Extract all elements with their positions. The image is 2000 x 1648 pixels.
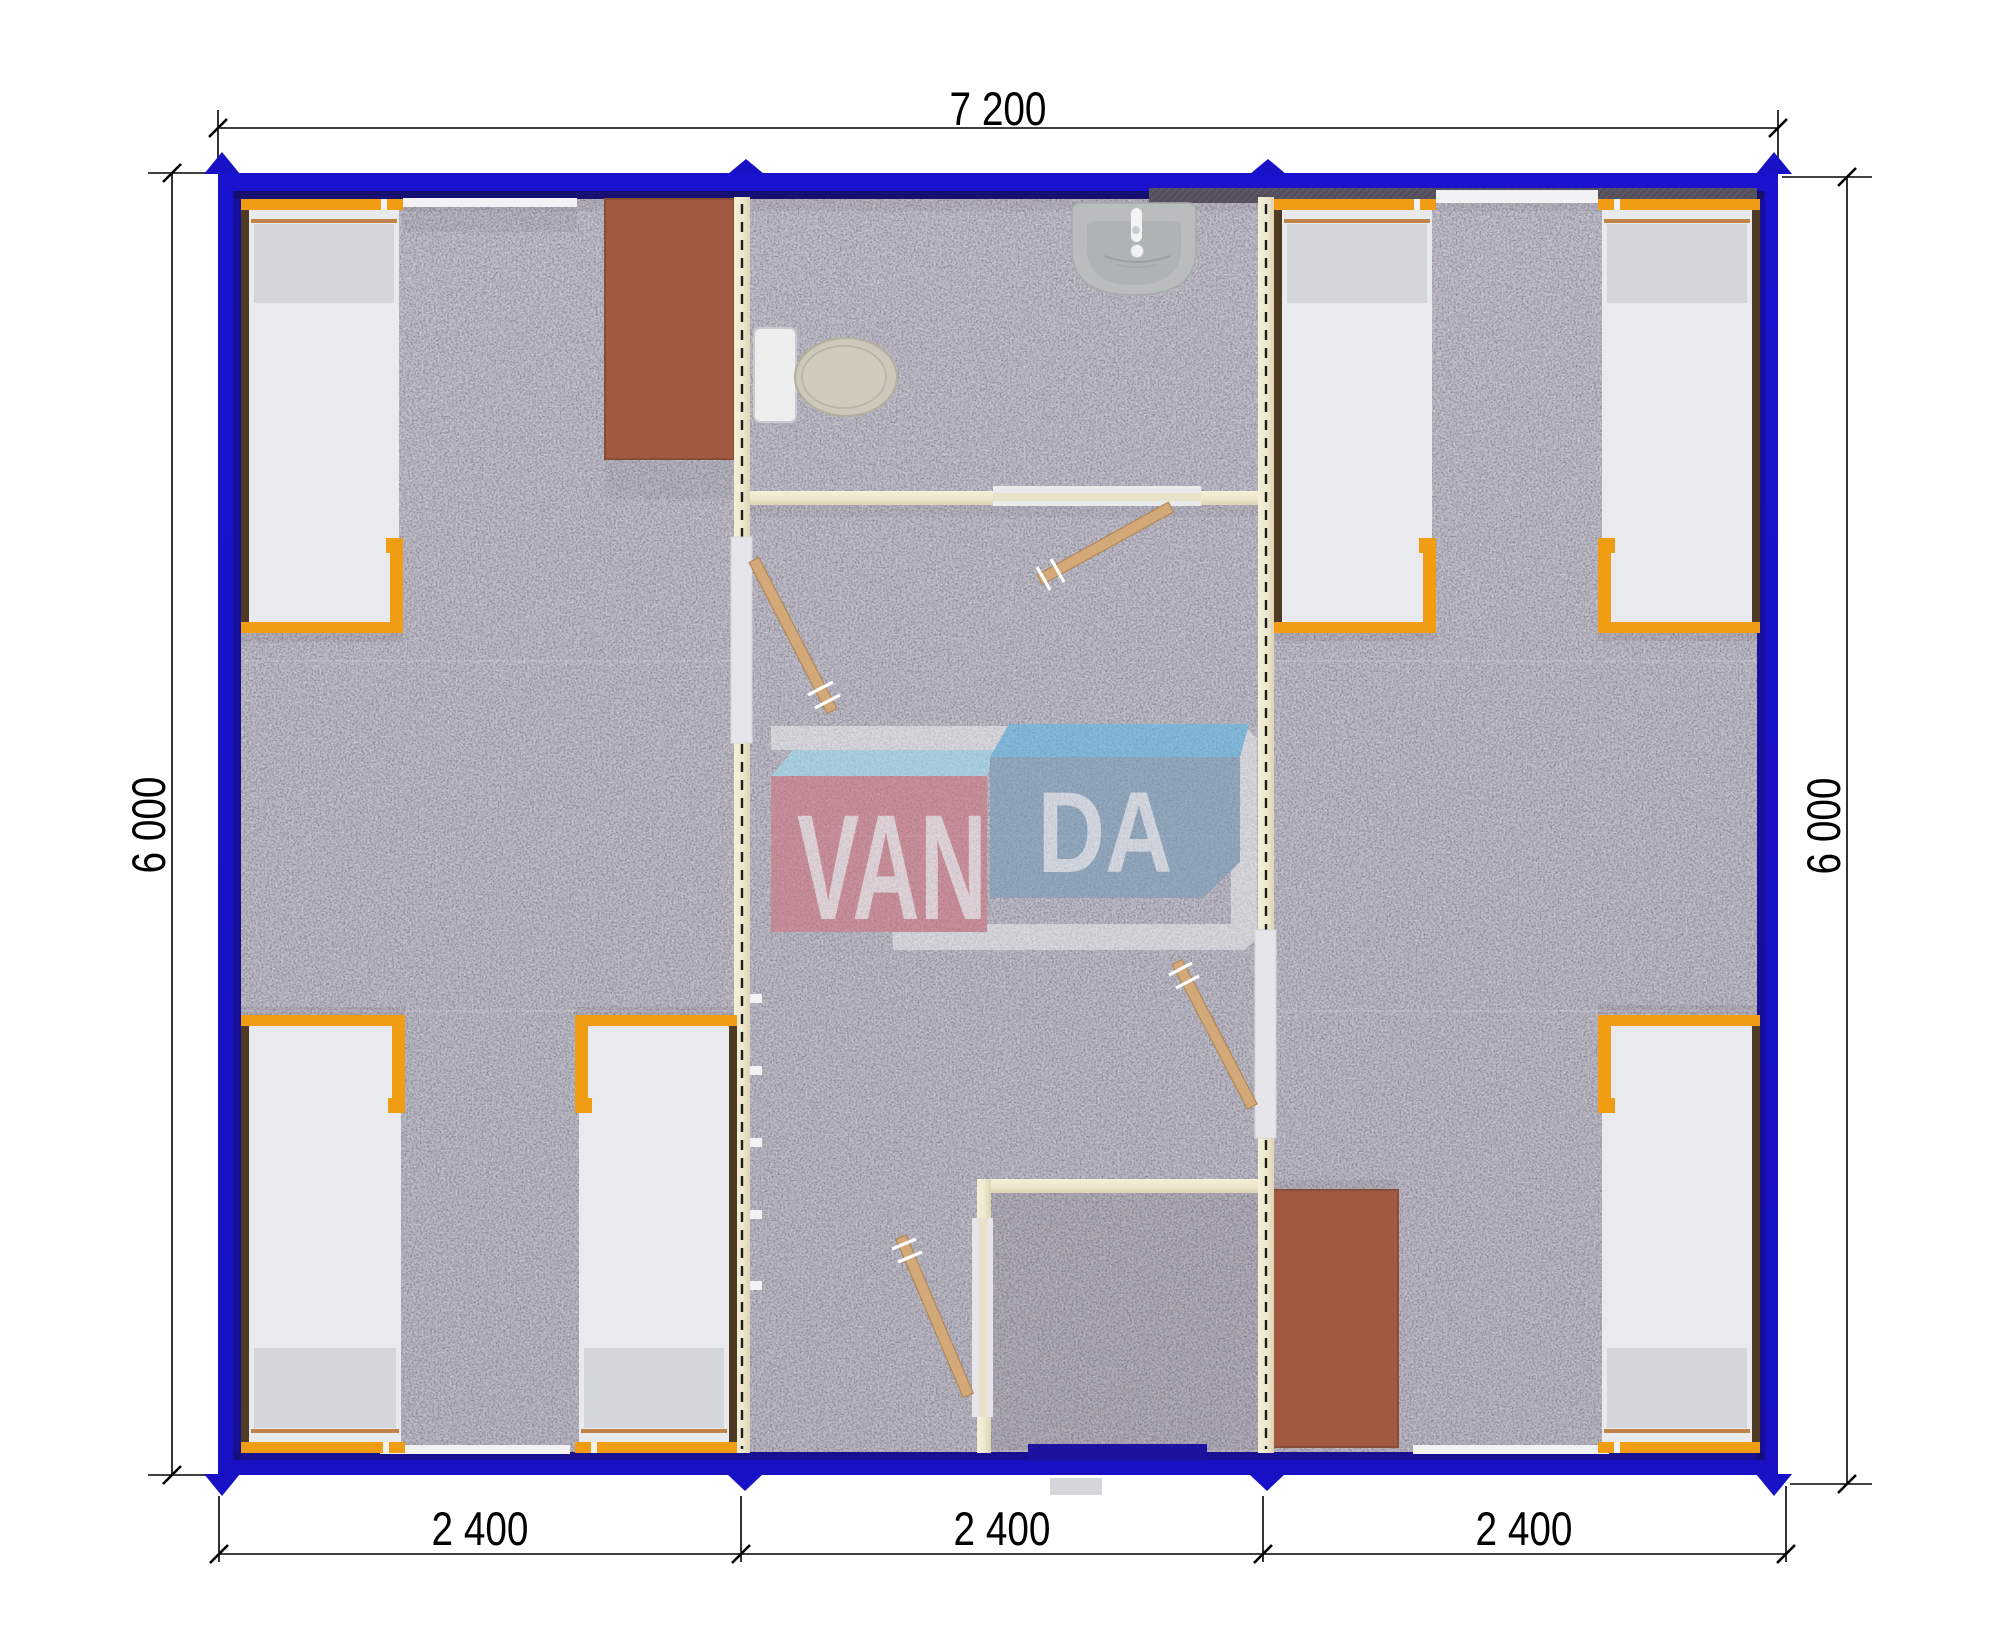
svg-text:2 400: 2 400 <box>1476 1502 1573 1555</box>
svg-text:DA: DA <box>1038 769 1173 897</box>
svg-text:VAN: VAN <box>797 783 987 951</box>
svg-text:2 400: 2 400 <box>432 1502 529 1555</box>
svg-text:6 000: 6 000 <box>122 777 175 874</box>
svg-text:6 000: 6 000 <box>1797 778 1850 875</box>
svg-text:7 200: 7 200 <box>950 82 1047 135</box>
svg-text:2 400: 2 400 <box>954 1502 1051 1555</box>
